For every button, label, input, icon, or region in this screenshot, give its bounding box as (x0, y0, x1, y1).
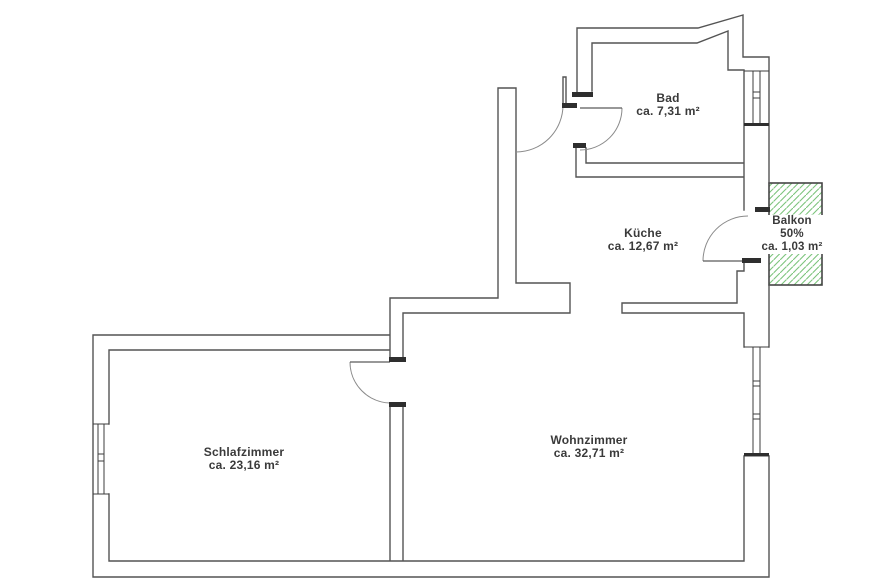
balcony-door-jamb-top (755, 207, 770, 212)
room-area-bad: ca. 7,31 m² (636, 105, 700, 118)
bath-door-jamb-top (572, 92, 593, 97)
bath-window (744, 71, 769, 125)
bath-door-jamb-bottom (573, 143, 586, 148)
room-label-schlafzimmer: Schlafzimmer ca. 23,16 m² (204, 446, 284, 472)
room-area-balkon: ca. 1,03 m² (761, 241, 822, 254)
room-label-bad: Bad ca. 7,31 m² (636, 92, 700, 118)
bedroom-door-arc (350, 362, 390, 403)
room-area-wohnzimmer: ca. 32,71 m² (550, 447, 627, 460)
entrance-jamb (562, 103, 577, 108)
room-area-kueche: ca. 12,67 m² (608, 240, 678, 253)
livingroom-window (744, 347, 769, 456)
room-area-schlafzimmer: ca. 23,16 m² (204, 459, 284, 472)
door-leaves (350, 108, 742, 362)
bath-door-arc (580, 108, 622, 150)
room-name-balkon: Balkon (761, 215, 822, 228)
room-share-balkon: 50% (761, 228, 822, 241)
bedroom-door-jamb-top (389, 357, 406, 362)
floor-plan: Bad ca. 7,31 m² Küche ca. 12,67 m² Balko… (0, 0, 880, 587)
bath-window-sill (744, 123, 769, 126)
room-label-balkon: Balkon 50% ca. 1,03 m² (758, 215, 825, 254)
door-arcs (350, 105, 748, 403)
room-label-wohnzimmer: Wohnzimmer ca. 32,71 m² (550, 434, 627, 460)
windows (93, 71, 769, 494)
balcony-door-arc (703, 216, 748, 261)
entrance-door-arc (516, 105, 563, 152)
balcony-door-jamb-bottom (742, 258, 761, 263)
door-jambs (389, 92, 770, 456)
bedroom-door-jamb-bottom (389, 402, 406, 407)
room-label-kueche: Küche ca. 12,67 m² (608, 227, 678, 253)
floor-plan-drawing (0, 0, 880, 587)
bedroom-window (93, 424, 109, 494)
livingroom-window-sill (744, 453, 769, 456)
